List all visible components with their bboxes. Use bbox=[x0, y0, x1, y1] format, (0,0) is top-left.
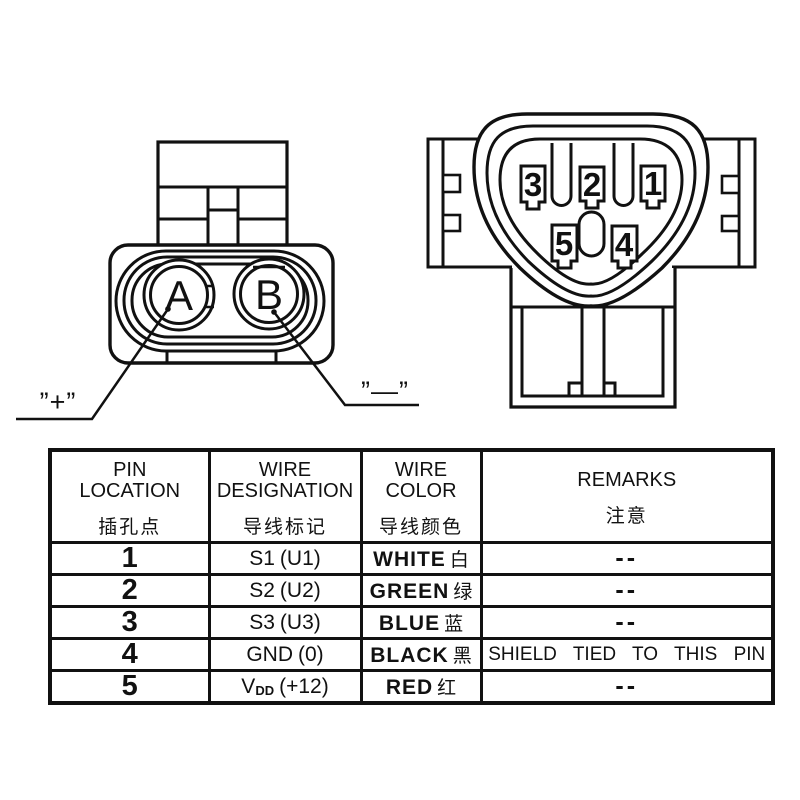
table-row-pin3: 3 S3(U3) BLUE蓝 -- bbox=[50, 607, 773, 639]
table-header-row: PIN LOCATION 插孔点 WIRE DESIGNATION 导线标记 W… bbox=[50, 450, 773, 543]
pin-cell: 1 bbox=[50, 543, 209, 575]
header-wire-color-en2: COLOR bbox=[385, 481, 456, 502]
cavity-a-label: A bbox=[165, 272, 193, 319]
header-wire-designation: WIRE DESIGNATION 导线标记 bbox=[209, 450, 361, 543]
table-row-pin5: 5 VDD(+12) RED红 -- bbox=[50, 671, 773, 704]
designation-cell: GND(0) bbox=[209, 639, 361, 671]
five-way-connector bbox=[428, 114, 755, 407]
pin-cell: 2 bbox=[50, 575, 209, 607]
color-cell: WHITE白 bbox=[361, 543, 481, 575]
designation-cell: S3(U3) bbox=[209, 607, 361, 639]
cavity-b-label: B bbox=[255, 271, 283, 318]
pin-cell: 3 bbox=[50, 607, 209, 639]
pin-3-label: 3 bbox=[524, 166, 542, 203]
remark-cell: -- bbox=[481, 671, 773, 704]
header-wire-designation-zh: 导线标记 bbox=[243, 512, 327, 539]
header-remarks: REMARKS 注意 bbox=[481, 450, 773, 543]
header-wire-color-en1: WIRE bbox=[395, 460, 447, 481]
header-wire-color: WIRE COLOR 导线颜色 bbox=[361, 450, 481, 543]
pin-cell: 4 bbox=[50, 639, 209, 671]
center-keyway-oval bbox=[579, 212, 604, 256]
two-way-connector bbox=[16, 142, 419, 419]
remark-cell: -- bbox=[481, 575, 773, 607]
pin-2-label: 2 bbox=[583, 166, 601, 203]
mounting-tab bbox=[158, 142, 287, 248]
header-wire-designation-en1: WIRE bbox=[259, 460, 311, 481]
designation-cell: VDD(+12) bbox=[209, 671, 361, 704]
color-cell: BLACK黑 bbox=[361, 639, 481, 671]
connector-diagrams: A B ”+” ”—” bbox=[0, 0, 800, 460]
header-wire-designation-en2: DESIGNATION bbox=[217, 481, 353, 502]
designation-cell: S2(U2) bbox=[209, 575, 361, 607]
pinout-table: PIN LOCATION 插孔点 WIRE DESIGNATION 导线标记 W… bbox=[48, 448, 775, 705]
color-cell: GREEN绿 bbox=[361, 575, 481, 607]
header-pin-location-en2: LOCATION bbox=[79, 481, 180, 502]
designation-cell: S1(U1) bbox=[209, 543, 361, 575]
header-wire-color-zh: 导线颜色 bbox=[379, 512, 463, 539]
negative-terminal-label: ”—” bbox=[361, 376, 409, 406]
pin-1-label: 1 bbox=[644, 165, 662, 202]
positive-terminal-label: ”+” bbox=[40, 387, 77, 417]
color-cell: RED红 bbox=[361, 671, 481, 704]
header-remarks-zh: 注意 bbox=[606, 501, 648, 528]
color-cell: BLUE蓝 bbox=[361, 607, 481, 639]
table-row-pin2: 2 S2(U2) GREEN绿 -- bbox=[50, 575, 773, 607]
header-remarks-en1: REMARKS bbox=[577, 470, 676, 491]
header-pin-location-zh: 插孔点 bbox=[98, 512, 161, 539]
pin-4-label: 4 bbox=[615, 226, 634, 263]
wiring-diagram-page: A B ”+” ”—” bbox=[0, 0, 800, 800]
remark-cell: -- bbox=[481, 543, 773, 575]
table-row-pin4: 4 GND(0) BLACK黑 SHIELD TIED TO THIS PIN bbox=[50, 639, 773, 671]
table-row-pin1: 1 S1(U1) WHITE白 -- bbox=[50, 543, 773, 575]
remark-cell: SHIELD TIED TO THIS PIN bbox=[481, 639, 773, 671]
pin-5-label: 5 bbox=[555, 225, 573, 262]
header-pin-location: PIN LOCATION 插孔点 bbox=[50, 450, 209, 543]
remark-cell: -- bbox=[481, 607, 773, 639]
pin-cell: 5 bbox=[50, 671, 209, 704]
header-pin-location-en1: PIN bbox=[113, 460, 146, 481]
